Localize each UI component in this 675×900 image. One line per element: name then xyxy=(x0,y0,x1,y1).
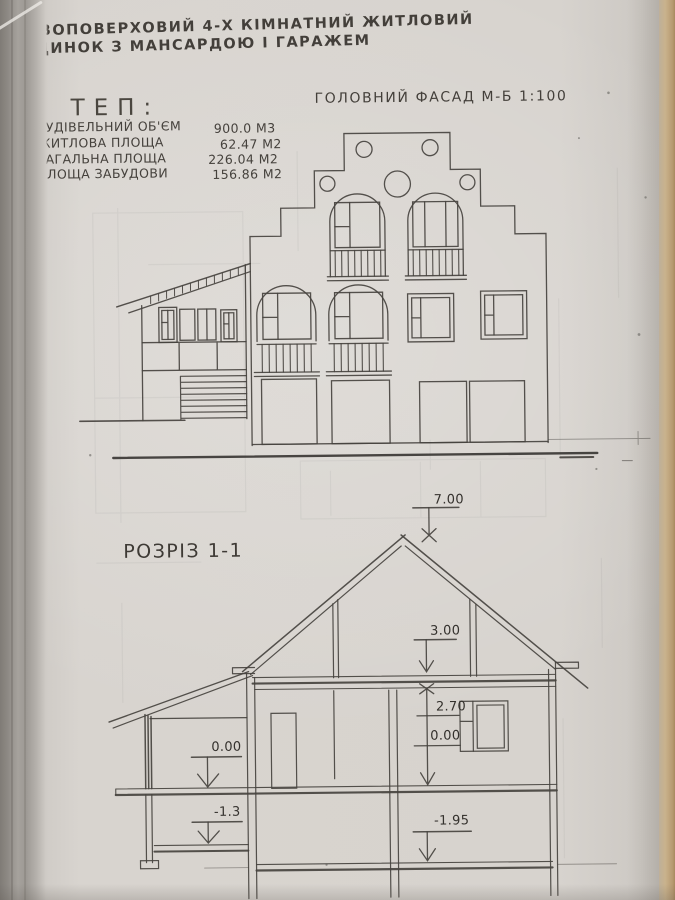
facade-view-title: ГОЛОВНИЙ ФАСАД М-Б 1:100 xyxy=(314,88,567,107)
tep-row-label: БУДІВЕЛЬНИЙ ОБ'ЄМ xyxy=(37,118,181,135)
level-mark-terrace: -1.3 xyxy=(214,805,241,820)
floor2-arched-window-left xyxy=(253,285,319,376)
tep-row-label: ЖИТЛОВА ПЛОЩА xyxy=(37,134,164,150)
tep-row-value: 62.47 М2 xyxy=(220,136,282,152)
section-drawing xyxy=(107,506,617,900)
tep-heading: ТЕП: xyxy=(70,94,160,121)
level-mark-attic-floor: 3.00 xyxy=(430,623,460,638)
attic-arched-window-left xyxy=(327,194,389,281)
tep-row-label: ПЛОЩА ЗАБУДОВИ xyxy=(37,165,168,181)
level-mark-ceiling: 2.70 xyxy=(436,699,466,714)
tep-row-value: 900.0 М3 xyxy=(214,120,276,136)
tep-row-label: ЗАГАЛЬНА ПЛОЩА xyxy=(37,150,166,166)
right-edge-shadow xyxy=(627,0,661,900)
page-edge-line xyxy=(11,0,13,900)
page-content: ВОПОВЕРХОВИЙ 4-Х КІМНАТНИЙ ЖИТЛОВИЙ ДИНО… xyxy=(0,0,675,900)
page-edge-line xyxy=(24,0,26,900)
facade-round-windows xyxy=(319,139,475,198)
ghost-bleed-lines xyxy=(92,148,624,863)
level-mark-basement: -1.95 xyxy=(434,813,469,828)
attic-floor-slab xyxy=(232,662,578,690)
level-mark-zero-right: 0.00 xyxy=(430,728,460,743)
dust-specks xyxy=(85,91,665,868)
facade-ground-lines xyxy=(113,431,650,466)
ground-floor-doors xyxy=(261,377,525,445)
first-floor-slab xyxy=(116,784,557,795)
section-interior-door xyxy=(271,713,297,788)
floor2-rect-window-right xyxy=(481,291,528,339)
basement-slab xyxy=(205,861,617,871)
page-curl-left-edge xyxy=(0,0,48,900)
bottom-shadow xyxy=(0,884,675,900)
tep-row-value: 226.04 М2 xyxy=(208,151,278,167)
section-window xyxy=(460,701,509,751)
facade-gable-outline xyxy=(249,131,548,445)
section-view-title: РОЗРІЗ 1-1 xyxy=(123,540,243,563)
floor2-arched-window-right xyxy=(325,285,391,376)
level-mark-ridge: 7.00 xyxy=(434,492,464,507)
facade-drawing xyxy=(77,130,650,466)
book-cover-edge xyxy=(659,0,675,900)
tep-row-value: 156.86 М2 xyxy=(212,166,282,182)
attic-arched-window-right xyxy=(405,193,467,280)
level-mark-zero-left: 0.00 xyxy=(211,740,241,755)
scanned-blueprint-page: ВОПОВЕРХОВИЙ 4-Х КІМНАТНИЙ ЖИТЛОВИЙ ДИНО… xyxy=(0,0,675,900)
floor2-rect-window-left xyxy=(408,293,455,341)
